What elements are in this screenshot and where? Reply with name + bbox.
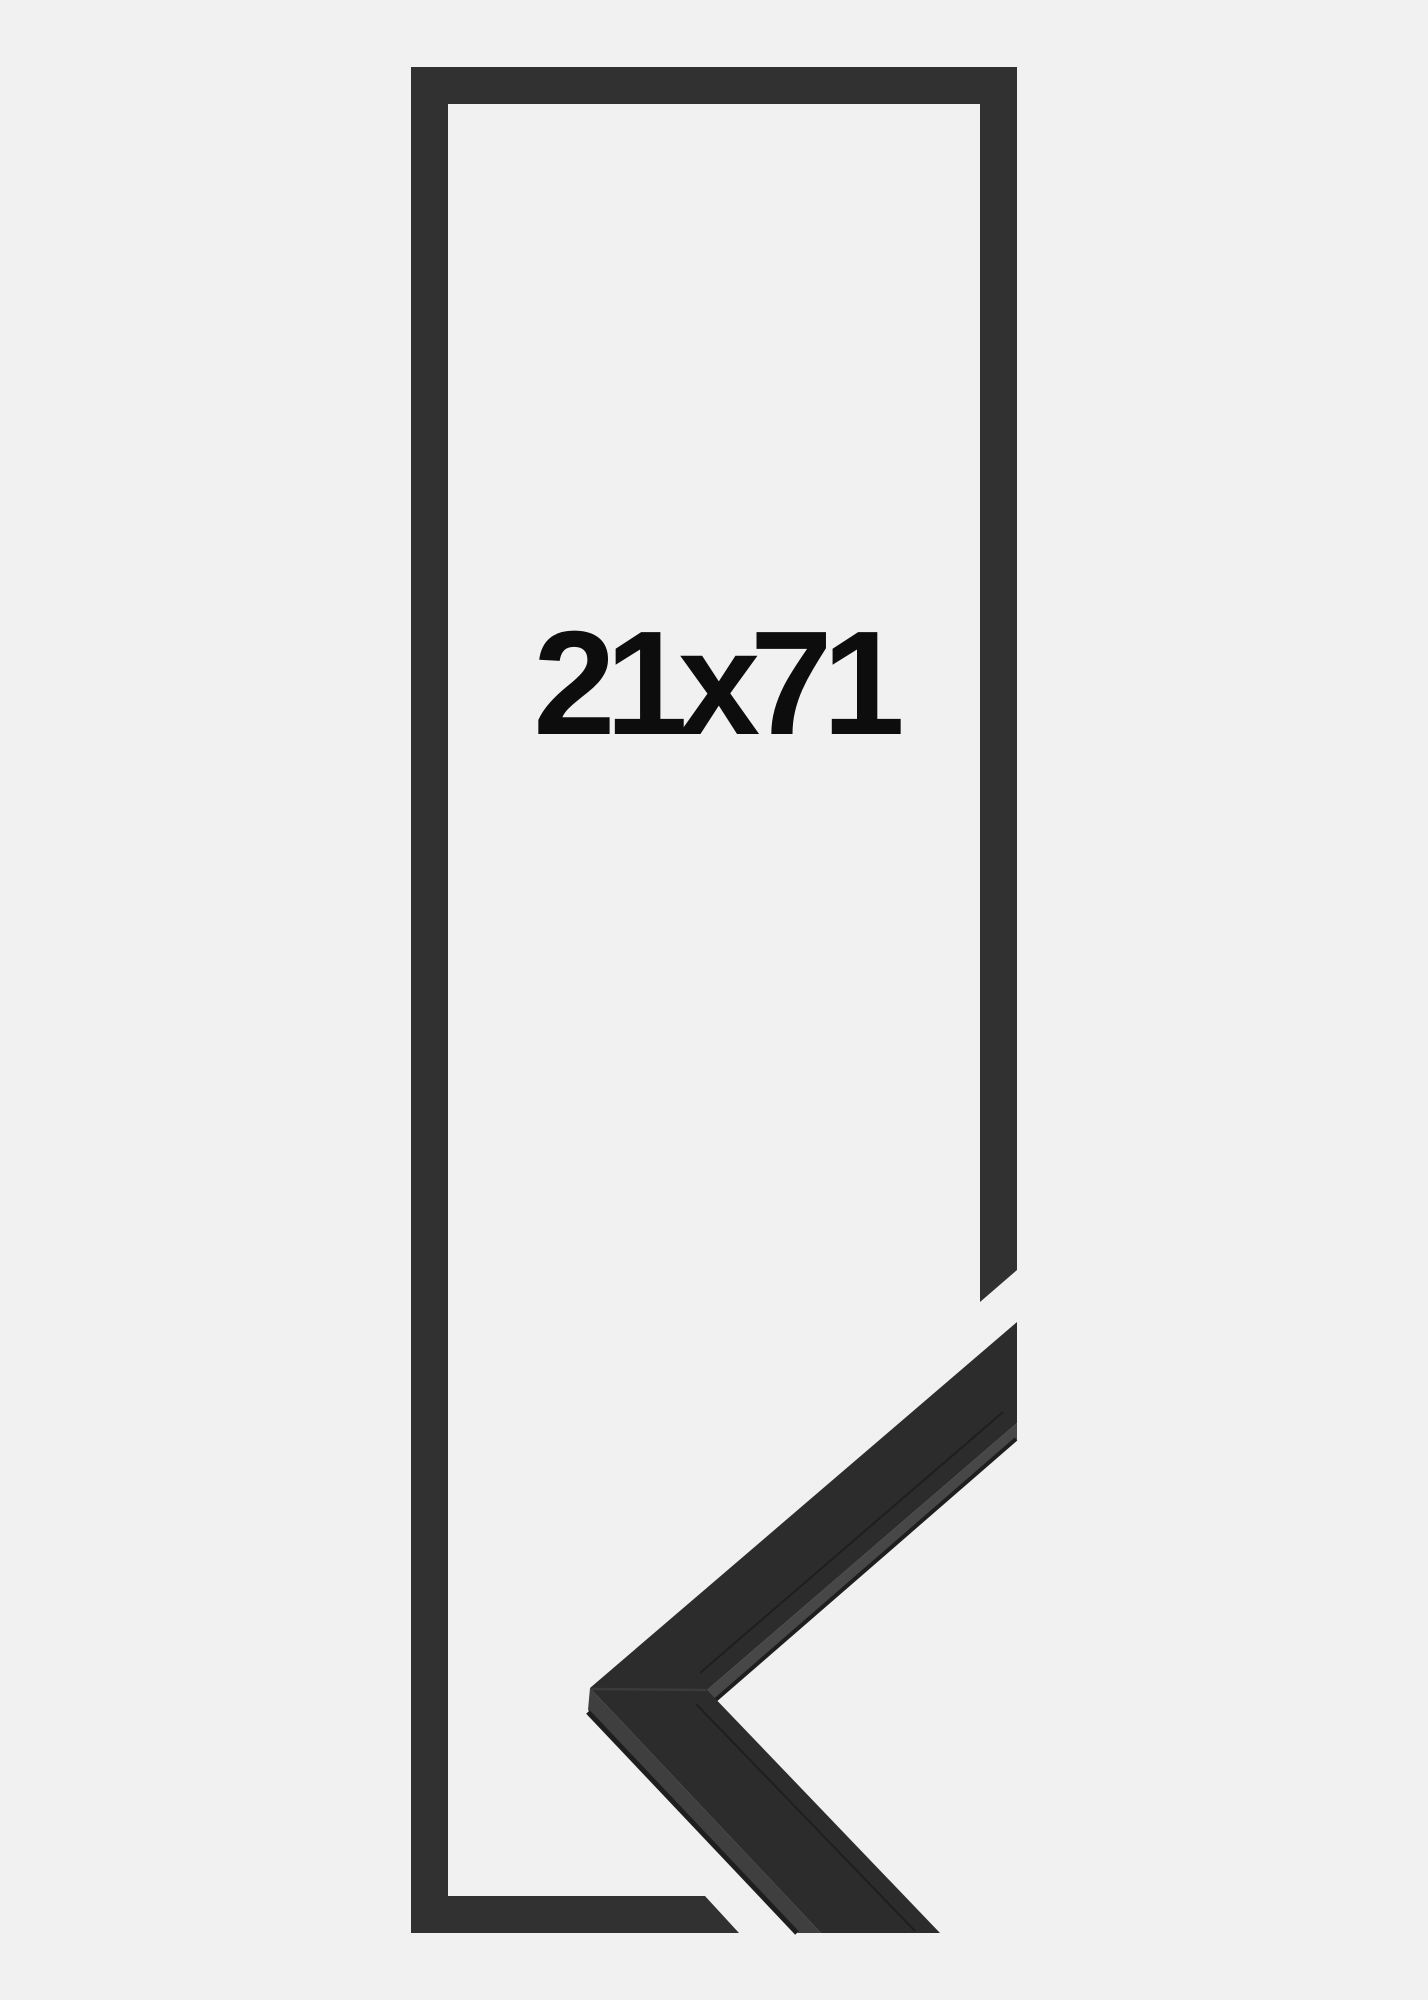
- corner-sample-miter-seam: [592, 1689, 706, 1690]
- frame-outline-right-bar: [980, 104, 1017, 1302]
- frame-outline-left-bar: [411, 67, 448, 1933]
- frame-corner-sample: [588, 1322, 1017, 1933]
- frame-outline-bottom-bar: [411, 1896, 739, 1933]
- size-label: 21x71: [448, 606, 980, 762]
- frame-size-illustration: [0, 0, 1428, 2000]
- corner-sample-lip-line-upper: [700, 1412, 1003, 1673]
- corner-sample-face: [590, 1322, 1017, 1933]
- product-image-canvas: 21x71: [0, 0, 1428, 2000]
- frame-outline-top-bar: [411, 67, 1017, 104]
